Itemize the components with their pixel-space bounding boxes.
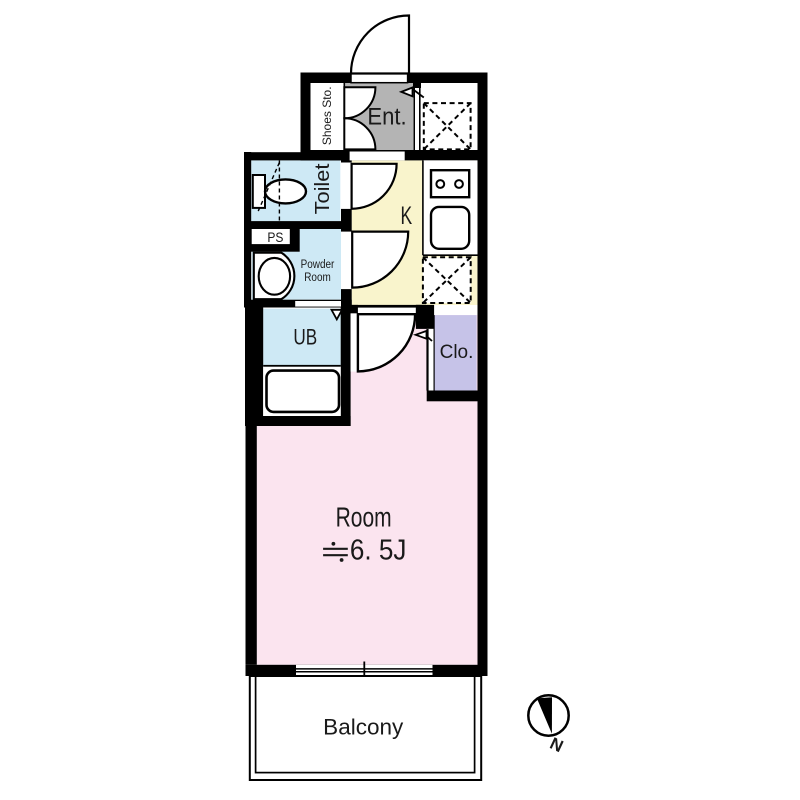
svg-text:UB: UB	[293, 326, 317, 351]
svg-text:Room: Room	[336, 503, 392, 534]
svg-text:6. 5J: 6. 5J	[350, 533, 407, 566]
svg-text:K: K	[400, 201, 412, 230]
svg-text:Powder: Powder	[301, 258, 335, 271]
svg-text:Balcony: Balcony	[323, 715, 404, 740]
svg-text:Clo.: Clo.	[440, 342, 474, 363]
svg-text:Toilet: Toilet	[312, 163, 334, 214]
svg-text:Shoes Sto.: Shoes Sto.	[320, 86, 334, 145]
svg-text:Room: Room	[304, 271, 331, 284]
svg-text:PS: PS	[267, 229, 283, 245]
svg-text:Ent.: Ent.	[367, 102, 406, 129]
